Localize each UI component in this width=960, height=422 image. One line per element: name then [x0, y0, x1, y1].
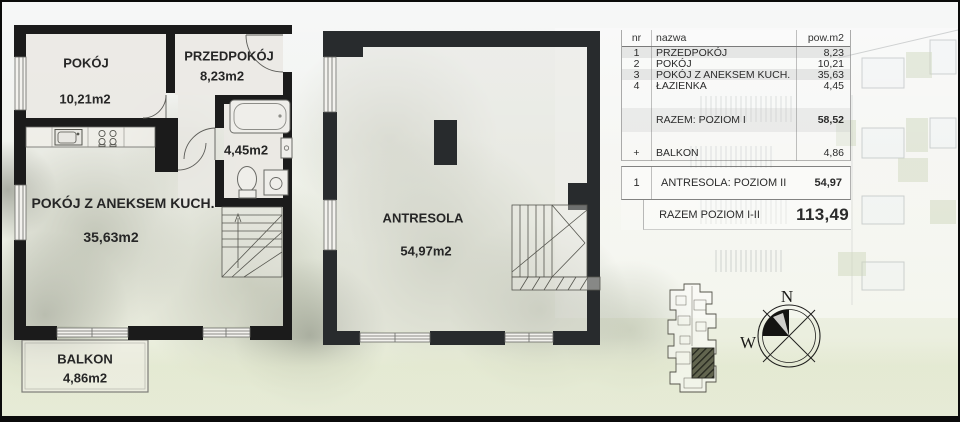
table-row: 3 POKÓJ Z ANEKSEM KUCH. 35,63 [622, 69, 850, 80]
stairs-level1-icon [222, 207, 282, 277]
table-header-row: nr nazwa pow.m2 [622, 30, 850, 47]
compass-north-label: N [781, 287, 793, 306]
cell-nr: 1 [622, 177, 651, 189]
washbasin-icon [281, 138, 292, 158]
balcony-row: + BALKON 4,86 [622, 146, 850, 161]
washer-icon [264, 170, 288, 195]
stairs-level2-icon [512, 205, 600, 290]
cell-nr: 4 [622, 80, 651, 92]
room-label-balkon: BALKON [57, 352, 113, 367]
cell-pow: 4,86 [797, 147, 850, 159]
cell-nazwa: BALKON [651, 147, 797, 159]
room-label-pokoj: POKÓJ [63, 56, 109, 71]
total-label: RAZEM POZIOM I-II [644, 209, 775, 221]
room-label-antresola: ANTRESOLA [383, 211, 464, 226]
header-nr: nr [622, 32, 651, 44]
room-area-przedpokoj: 8,23m2 [200, 69, 244, 84]
room-przedpokoj-floor [175, 34, 283, 95]
cell-nazwa: RAZEM: POZIOM I [651, 114, 797, 126]
table-row: 1 PRZEDPOKÓJ 8,23 [622, 47, 850, 58]
cell-pow: 58,52 [797, 114, 850, 126]
room-area-balkon: 4,86m2 [63, 371, 107, 386]
locator-unit-highlight [692, 348, 714, 378]
header-pow: pow.m2 [797, 32, 850, 44]
antresola-level2-row: 1 ANTRESOLA: POZIOM II 54,97 [621, 166, 851, 200]
subtotal-level1-row: RAZEM: POZIOM I 58,52 [622, 108, 850, 132]
room-area-aneks: 35,63m2 [83, 229, 138, 245]
kitchen-counter [26, 127, 155, 147]
floorplan-sheet: N W POKÓJ 10,21m2 PRZEDPOKÓJ 8,23m2 4,45… [0, 0, 960, 422]
cell-nazwa: ŁAZIENKA [651, 80, 797, 92]
hallway-floor [178, 95, 215, 207]
room-label-przedpokoj: PRZEDPOKÓJ [184, 49, 274, 64]
building-locator-map [668, 284, 716, 392]
cell-nr: + [622, 147, 651, 159]
toilet-icon [238, 167, 257, 199]
cell-pow: 4,45 [797, 80, 850, 92]
chimney-pillar [434, 120, 457, 165]
bathtub-icon [230, 100, 290, 133]
area-summary-table: nr nazwa pow.m2 1 PRZEDPOKÓJ 8,23 2 POKÓ… [621, 30, 851, 230]
compass-west-label: W [740, 333, 757, 352]
room-label-aneks: POKÓJ Z ANEKSEM KUCH. [31, 195, 214, 211]
header-nazwa: nazwa [651, 32, 797, 44]
cell-nazwa: ANTRESOLA: POZIOM II [651, 177, 790, 189]
table-row: 4 ŁAZIENKA 4,45 [622, 80, 850, 91]
room-area-pokoj: 10,21m2 [59, 92, 110, 107]
table-row: 2 POKÓJ 10,21 [622, 58, 850, 69]
cell-pow: 54,97 [790, 177, 850, 189]
total-value: 113,49 [775, 205, 851, 225]
total-row: RAZEM POZIOM I-II 113,49 [643, 200, 851, 230]
plan-level2 [323, 31, 600, 345]
compass-rose-icon: N W [740, 287, 820, 367]
sink-icon [55, 130, 82, 146]
room-area-antresola: 54,97m2 [400, 244, 451, 259]
room-area-lazienka: 4,45m2 [224, 143, 268, 158]
